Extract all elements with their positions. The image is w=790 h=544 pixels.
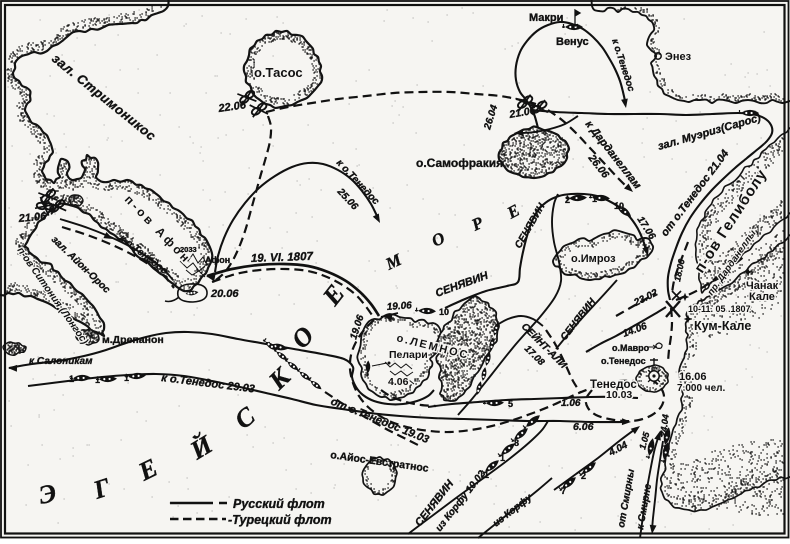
svg-text:7: 7 <box>561 486 566 496</box>
svg-text:2033: 2033 <box>180 245 197 254</box>
svg-text:Энез: Энез <box>665 51 692 63</box>
svg-text:м.Дрепанон: м.Дрепанон <box>102 334 164 346</box>
svg-text:1: 1 <box>592 194 597 204</box>
svg-text:10: 10 <box>614 201 624 211</box>
svg-text:10: 10 <box>439 307 449 317</box>
svg-text:-Турецкий флот: -Турецкий флот <box>228 513 332 527</box>
svg-text:1: 1 <box>500 453 505 463</box>
svg-text:о.Мавро: о.Мавро <box>612 343 650 353</box>
svg-text:1: 1 <box>124 373 129 383</box>
svg-text:19. VI. 1807: 19. VI. 1807 <box>251 251 314 265</box>
svg-text:1.06: 1.06 <box>561 398 581 409</box>
svg-text:Венус: Венус <box>556 36 589 48</box>
svg-text:Русский флот: Русский флот <box>233 497 325 511</box>
svg-text:Кум-Кале: Кум-Кале <box>694 319 751 333</box>
svg-text:о.Имроз: о.Имроз <box>571 253 616 265</box>
svg-text:о.Самофракия: о.Самофракия <box>416 156 503 170</box>
svg-text:Кале: Кале <box>749 291 775 303</box>
svg-text:20.06: 20.06 <box>210 288 239 300</box>
svg-text:4.06: 4.06 <box>388 376 409 388</box>
svg-text:19.06: 19.06 <box>386 300 412 313</box>
svg-text:21.06: 21.06 <box>17 211 47 226</box>
svg-text:10.03: 10.03 <box>606 389 632 401</box>
svg-text:Пелари: Пелари <box>389 349 428 361</box>
svg-text:к Салоникам: к Салоникам <box>29 356 93 367</box>
svg-text:1: 1 <box>69 374 74 384</box>
svg-text:Макри: Макри <box>529 12 563 24</box>
svg-text:10-11. 05 .1807: 10-11. 05 .1807 <box>688 304 751 314</box>
svg-text:7 000 чел.: 7 000 чел. <box>677 383 726 394</box>
svg-text:2: 2 <box>581 471 586 481</box>
svg-text:Афон: Афон <box>205 255 230 265</box>
svg-text:8: 8 <box>514 438 519 448</box>
svg-text:6.06: 6.06 <box>573 421 594 433</box>
svg-text:о.Тасос: о.Тасос <box>254 65 303 80</box>
svg-text:о.Тенедос: о.Тенедос <box>601 356 646 366</box>
svg-text:2: 2 <box>565 195 570 205</box>
svg-text:1: 1 <box>95 375 100 385</box>
svg-text:5: 5 <box>508 399 513 409</box>
svg-text:16.06: 16.06 <box>679 371 707 383</box>
